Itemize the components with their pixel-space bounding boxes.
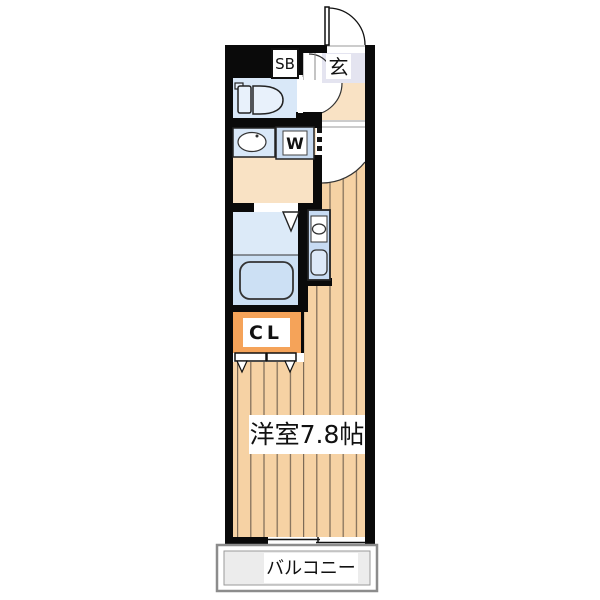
- shoe-box-label: SB: [275, 55, 295, 73]
- balcony: バルコニー: [217, 545, 377, 591]
- balcony-label: バルコニー: [266, 558, 356, 579]
- entrance-label: 玄: [329, 55, 349, 79]
- floorplan-svg: W CL SB 玄 洋室7.8帖: [0, 0, 600, 600]
- floorplan-canvas: W CL SB 玄 洋室7.8帖: [0, 0, 600, 600]
- entrance-label-box: 玄: [326, 54, 351, 79]
- entrance-door-arc: [329, 8, 365, 45]
- mini-kitchen: [308, 210, 330, 280]
- washbasin: [233, 128, 275, 157]
- entrance-door-leaf: [325, 7, 329, 45]
- kitchen-sink: [311, 250, 327, 275]
- closet-label: CL: [249, 322, 283, 344]
- washing-machine-space: W: [276, 127, 314, 159]
- shoe-box: SB: [272, 49, 298, 78]
- bathtub: [240, 262, 293, 299]
- entrance-door: [325, 7, 365, 45]
- main-room-label: 洋室7.8帖: [250, 420, 365, 449]
- main-room-label-box: 洋室7.8帖: [249, 415, 365, 454]
- washing-machine-label: W: [286, 134, 304, 153]
- closet: CL: [233, 312, 301, 353]
